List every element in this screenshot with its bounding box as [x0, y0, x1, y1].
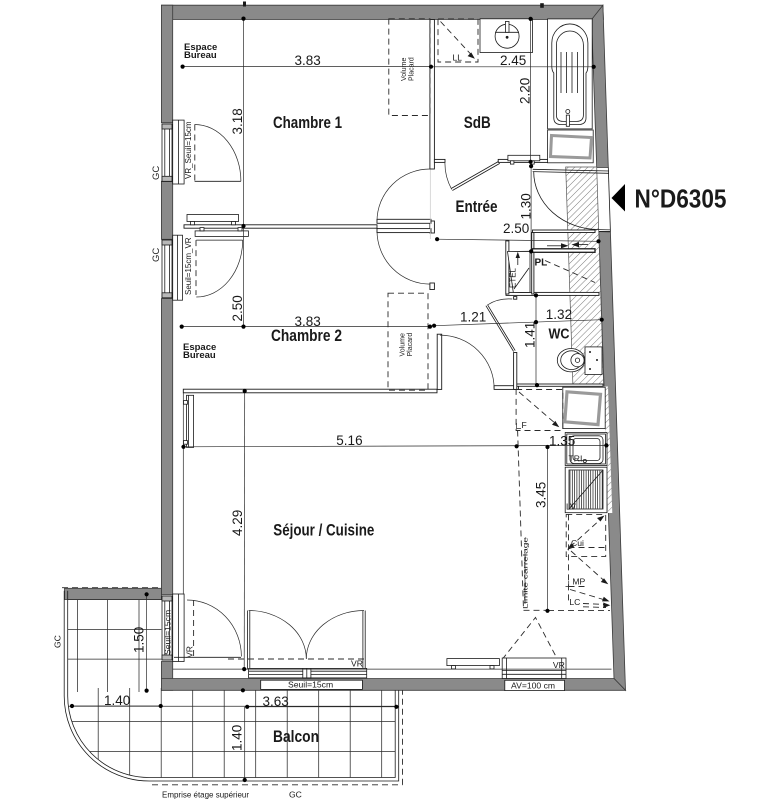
svg-text:PL: PL — [535, 258, 548, 269]
svg-text:1.40: 1.40 — [104, 693, 130, 708]
svg-text:N°D6305: N°D6305 — [635, 184, 727, 214]
svg-text:3.63: 3.63 — [263, 694, 289, 709]
svg-text:1.21: 1.21 — [460, 310, 486, 325]
svg-text:Seuil=15cm_VR: Seuil=15cm_VR — [184, 237, 193, 295]
svg-text:LV: LV — [566, 502, 576, 512]
svg-text:Chambre 2: Chambre 2 — [271, 327, 342, 345]
svg-text:LL: LL — [453, 53, 463, 63]
svg-text:Placard: Placard — [409, 57, 416, 81]
svg-text:GC: GC — [151, 166, 162, 180]
svg-text:Limite carrelage: Limite carrelage — [523, 537, 530, 609]
svg-text:Bureau: Bureau — [183, 350, 216, 361]
svg-text:5.16: 5.16 — [336, 433, 362, 448]
svg-text:1.50: 1.50 — [132, 627, 147, 653]
svg-text:Emprise étage supérieur: Emprise étage supérieur — [162, 790, 249, 800]
svg-text:1.40: 1.40 — [230, 725, 245, 751]
svg-text:Entrée: Entrée — [456, 198, 498, 216]
svg-text:3.83: 3.83 — [295, 53, 321, 68]
svg-text:Placard: Placard — [407, 333, 414, 357]
svg-text:2.45: 2.45 — [500, 53, 526, 68]
svg-text:2.20: 2.20 — [518, 78, 533, 104]
svg-text:VR: VR — [553, 660, 565, 670]
svg-text:Seuil=15cm: Seuil=15cm — [162, 610, 172, 655]
svg-text:Séjour / Cuisine: Séjour / Cuisine — [273, 522, 374, 540]
svg-text:Volume: Volume — [401, 58, 408, 81]
svg-text:ETEL: ETEL — [509, 267, 518, 288]
svg-text:Volume: Volume — [400, 333, 407, 356]
svg-text:WC: WC — [549, 326, 570, 343]
svg-text:1.35: 1.35 — [549, 433, 575, 448]
svg-text:GC: GC — [53, 635, 63, 648]
svg-text:VR: VR — [351, 659, 363, 669]
svg-text:2.50: 2.50 — [230, 295, 245, 321]
svg-text:3.18: 3.18 — [230, 108, 245, 134]
svg-text:Bureau: Bureau — [184, 50, 217, 61]
svg-text:F: F — [522, 420, 527, 430]
svg-text:2.50: 2.50 — [503, 221, 529, 236]
svg-text:Chambre 1: Chambre 1 — [273, 114, 342, 132]
svg-text:GC: GC — [289, 790, 302, 800]
svg-text:SdB: SdB — [464, 114, 491, 132]
svg-text:TRI: TRI — [569, 454, 583, 464]
svg-text:1.30: 1.30 — [519, 193, 534, 219]
svg-text:VR: VR — [185, 646, 195, 658]
svg-text:Balcon: Balcon — [273, 728, 319, 746]
svg-text:3.45: 3.45 — [534, 482, 549, 508]
svg-text:Seuil=15cm: Seuil=15cm — [288, 680, 333, 690]
svg-text:GC: GC — [151, 248, 162, 262]
svg-text:1.32: 1.32 — [546, 307, 572, 322]
svg-text:4.29: 4.29 — [230, 510, 245, 536]
svg-text:VR_Seuil=15cm: VR_Seuil=15cm — [184, 121, 193, 179]
svg-text:LC: LC — [569, 597, 580, 607]
svg-text:AV=100 cm: AV=100 cm — [511, 681, 555, 691]
svg-text:MP: MP — [572, 577, 585, 587]
svg-text:Cui: Cui — [571, 538, 584, 548]
svg-text:1.41: 1.41 — [523, 322, 538, 348]
